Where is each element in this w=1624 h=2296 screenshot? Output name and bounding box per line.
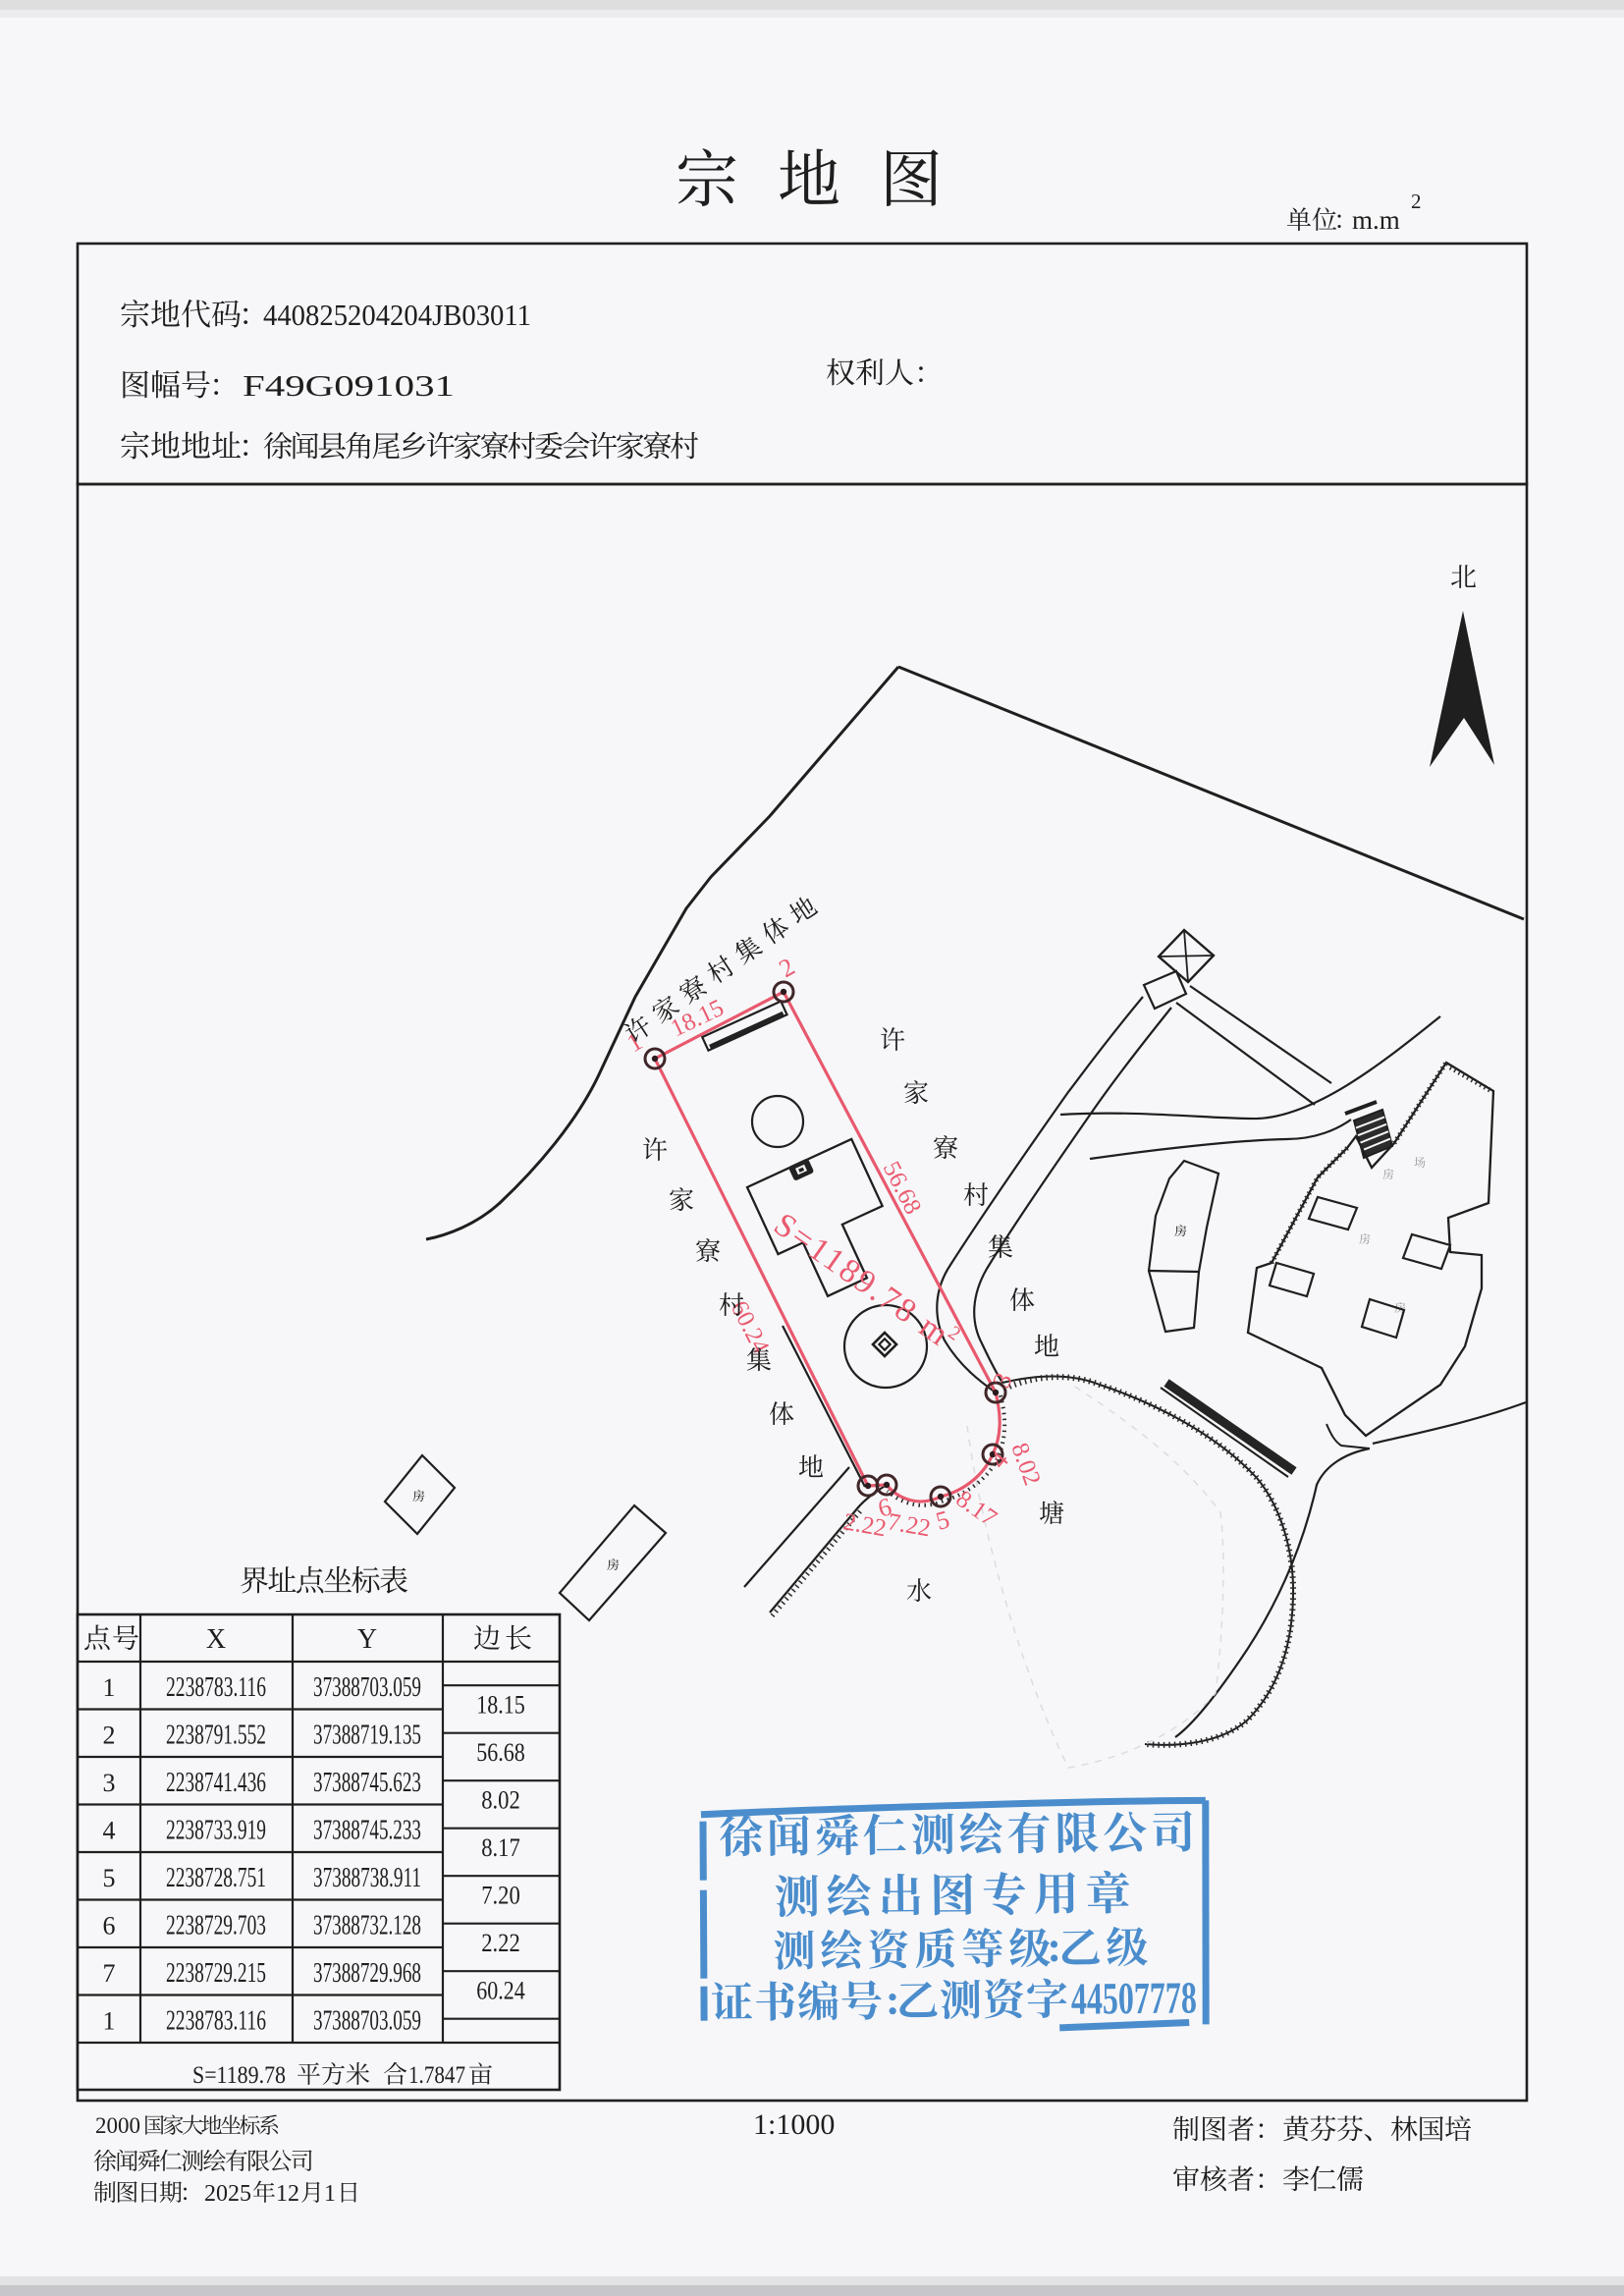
svg-text:44507778: 44507778 <box>1071 1972 1198 2023</box>
svg-text:37388703.059: 37388703.059 <box>313 2006 421 2037</box>
svg-text:2238783.116: 2238783.116 <box>166 1672 266 1703</box>
svg-text:m.m: m.m <box>1352 205 1400 235</box>
svg-text:F49G091031: F49G091031 <box>243 368 455 403</box>
svg-text:3: 3 <box>103 1769 116 1797</box>
svg-text::: : <box>886 1976 900 2024</box>
svg-text:S=1189.78: S=1189.78 <box>192 2062 286 2089</box>
svg-text:56.68: 56.68 <box>476 1738 525 1767</box>
svg-text:1:1000: 1:1000 <box>753 2108 835 2141</box>
svg-text:1.7847: 1.7847 <box>408 2062 465 2089</box>
svg-text:1: 1 <box>103 2007 116 2036</box>
svg-text:2: 2 <box>1411 190 1422 213</box>
svg-text:37388729.968: 37388729.968 <box>313 1958 421 1989</box>
svg-text:2238728.751: 2238728.751 <box>166 1863 266 1893</box>
svg-text:8.02: 8.02 <box>481 1786 520 1815</box>
svg-text:6: 6 <box>103 1912 116 1941</box>
svg-text:2025: 2025 <box>204 2181 251 2207</box>
svg-text:18.15: 18.15 <box>476 1691 525 1720</box>
svg-text:2: 2 <box>103 1722 116 1750</box>
svg-text:12: 12 <box>276 2181 299 2207</box>
svg-text:37388703.059: 37388703.059 <box>313 1672 421 1703</box>
svg-text:2238791.552: 2238791.552 <box>166 1721 266 1751</box>
svg-text:2238733.919: 2238733.919 <box>166 1816 266 1846</box>
svg-text:7: 7 <box>103 1959 116 1988</box>
svg-text:1: 1 <box>324 2181 336 2207</box>
svg-text::: : <box>1047 1923 1061 1971</box>
svg-text:Y: Y <box>357 1624 377 1655</box>
svg-text:X: X <box>206 1624 226 1655</box>
svg-text:8.17: 8.17 <box>481 1833 520 1862</box>
svg-text:37388738.911: 37388738.911 <box>313 1863 421 1893</box>
svg-text:5: 5 <box>103 1864 116 1892</box>
svg-text:37388732.128: 37388732.128 <box>313 1911 421 1941</box>
svg-text:60.24: 60.24 <box>476 1977 525 2005</box>
svg-text:2238741.436: 2238741.436 <box>166 1768 266 1798</box>
svg-text:37388745.233: 37388745.233 <box>313 1816 421 1846</box>
svg-text:37388719.135: 37388719.135 <box>313 1721 421 1751</box>
svg-text:2238729.703: 2238729.703 <box>166 1911 266 1941</box>
svg-text:2238783.116: 2238783.116 <box>166 2006 266 2037</box>
svg-text:7.20: 7.20 <box>481 1882 520 1910</box>
svg-text:37388745.623: 37388745.623 <box>313 1768 421 1798</box>
svg-text:2000: 2000 <box>95 2113 140 2138</box>
svg-text:2238729.215: 2238729.215 <box>166 1958 266 1989</box>
svg-text:2.22: 2.22 <box>481 1929 520 1957</box>
svg-text:1: 1 <box>103 1673 116 1702</box>
svg-text:440825204204JB03011: 440825204204JB03011 <box>263 298 531 332</box>
svg-text:4: 4 <box>103 1817 116 1845</box>
